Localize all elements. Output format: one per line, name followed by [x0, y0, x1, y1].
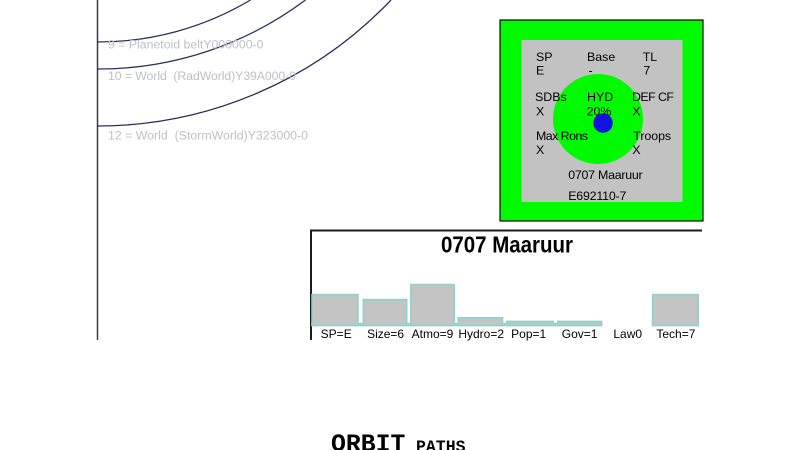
svg-text:10 = World (RadWorld)Y39A000-: 10 = World (RadWorld)Y39A000-0: [108, 69, 296, 83]
svg-text:20%: 20%: [587, 105, 612, 119]
svg-text:Size=6: Size=6: [367, 327, 404, 341]
svg-text:12 = World (StormWorld)Y32300: 12 = World (StormWorld)Y323000-0: [108, 129, 308, 143]
svg-text:TL: TL: [643, 50, 658, 64]
svg-text:-: -: [589, 64, 593, 78]
svg-text:SP=E: SP=E: [321, 327, 352, 341]
svg-text:Tech=7: Tech=7: [656, 327, 695, 341]
svg-text:SP: SP: [536, 50, 553, 64]
svg-text:Gov=1: Gov=1: [562, 327, 598, 341]
svg-text:7: 7: [643, 64, 650, 78]
svg-text:X: X: [632, 143, 640, 157]
svg-text:Max Rons: Max Rons: [536, 129, 588, 143]
svg-text:E: E: [536, 64, 544, 78]
svg-text:SDBs: SDBs: [535, 90, 567, 104]
svg-text:X: X: [632, 105, 640, 119]
svg-text:9 = Planetoid beltY000000-0: 9 = Planetoid beltY000000-0: [108, 38, 264, 52]
svg-text:Base: Base: [587, 50, 615, 64]
svg-text:X: X: [536, 143, 544, 157]
svg-text:0707 Maaruur: 0707 Maaruur: [441, 232, 573, 258]
svg-text:Pop=1: Pop=1: [511, 327, 546, 341]
svg-text:Hydro=2: Hydro=2: [458, 327, 504, 341]
svg-text:DEF CF: DEF CF: [632, 90, 674, 104]
svg-text:0707 Maaruur: 0707 Maaruur: [568, 168, 643, 182]
svg-text:X: X: [536, 105, 544, 119]
svg-text:HYD: HYD: [587, 90, 613, 104]
svg-text:ORBIT: ORBIT: [331, 431, 406, 450]
svg-text:Atmo=9: Atmo=9: [412, 327, 454, 341]
svg-text:E692110-7: E692110-7: [568, 189, 626, 203]
svg-text:Troops: Troops: [633, 129, 671, 143]
svg-text:PATHS: PATHS: [416, 437, 466, 450]
svg-text:Law0: Law0: [613, 327, 642, 341]
